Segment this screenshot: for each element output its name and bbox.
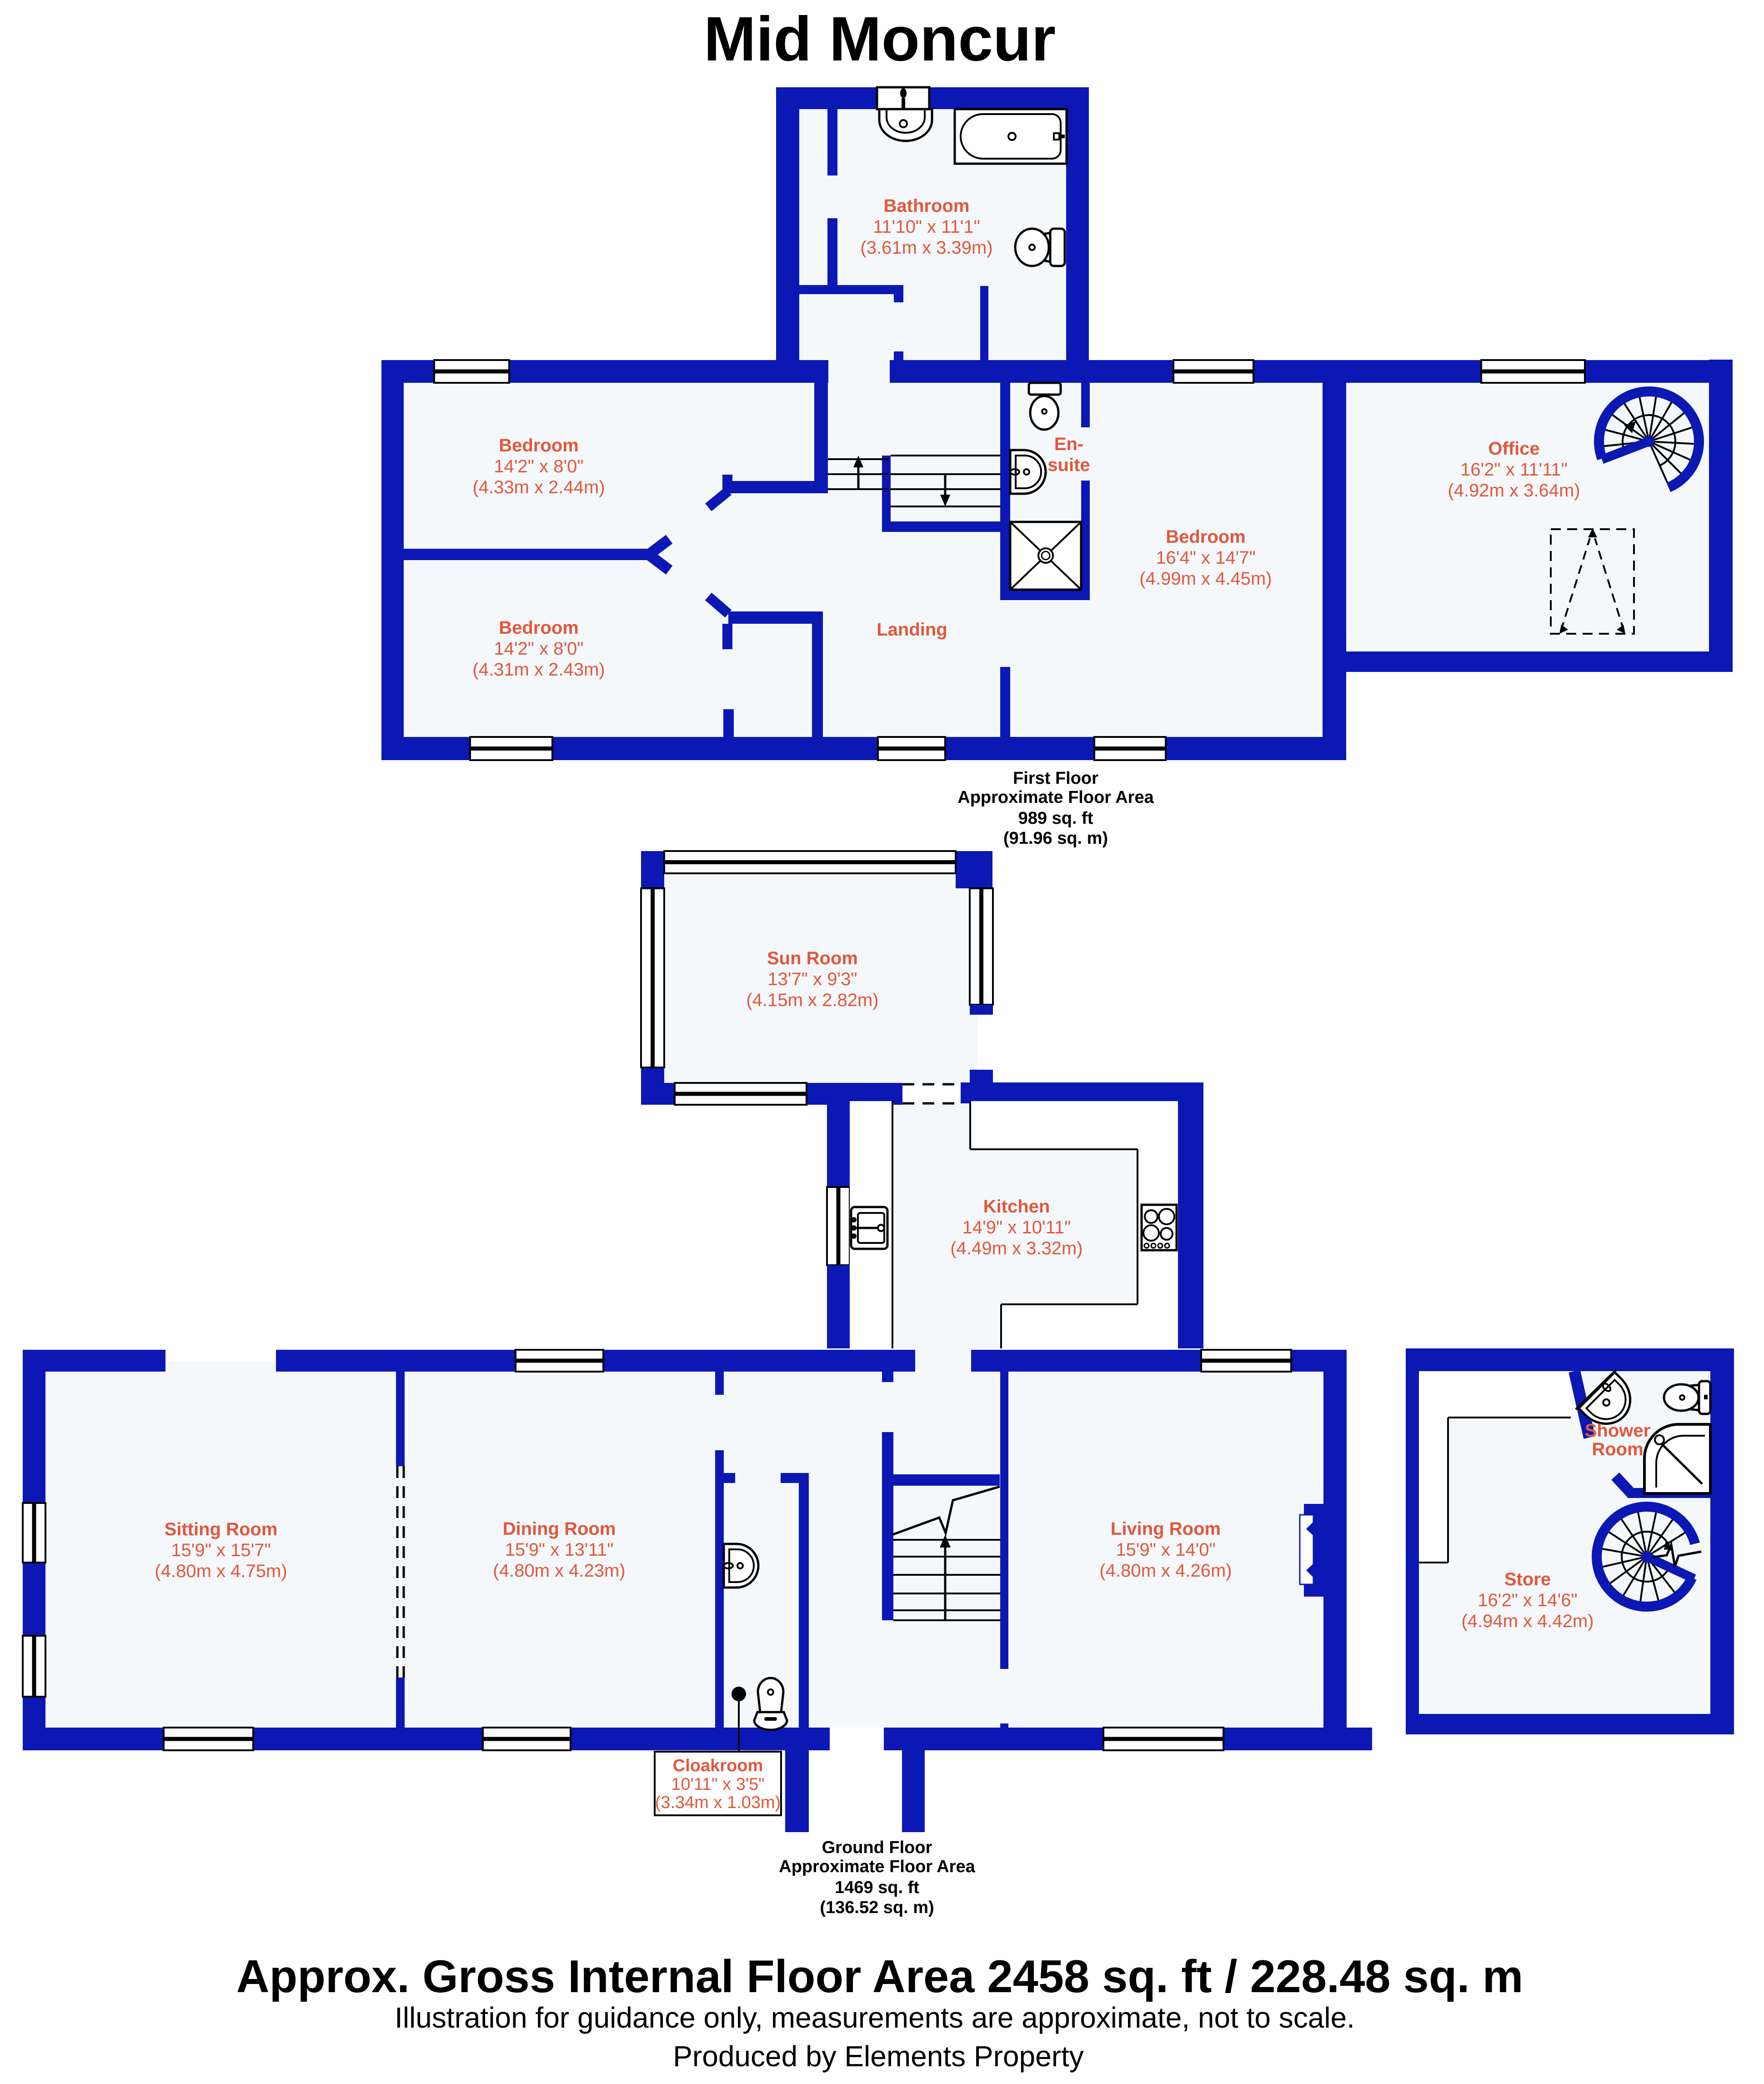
svg-text:First Floor: First Floor bbox=[1013, 769, 1098, 788]
svg-text:Approximate Floor Area: Approximate Floor Area bbox=[957, 788, 1154, 807]
svg-text:suite: suite bbox=[1047, 455, 1090, 475]
svg-text:14'2" x 8'0": 14'2" x 8'0" bbox=[494, 456, 583, 476]
svg-text:1469 sq. ft: 1469 sq. ft bbox=[835, 1878, 919, 1897]
svg-text:15'9" x 13'11": 15'9" x 13'11" bbox=[505, 1540, 614, 1560]
svg-text:(4.80m x 4.23m): (4.80m x 4.23m) bbox=[493, 1561, 625, 1581]
svg-text:(4.99m x 4.45m): (4.99m x 4.45m) bbox=[1139, 569, 1272, 589]
svg-text:11'10" x 11'1": 11'10" x 11'1" bbox=[873, 217, 980, 237]
svg-text:16'2" x 11'11": 16'2" x 11'11" bbox=[1460, 460, 1568, 480]
svg-text:14'9" x 10'11": 14'9" x 10'11" bbox=[962, 1217, 1071, 1237]
svg-text:Sitting Room: Sitting Room bbox=[165, 1519, 278, 1539]
svg-text:(4.80m x 4.75m): (4.80m x 4.75m) bbox=[155, 1561, 287, 1581]
svg-text:Ground Floor: Ground Floor bbox=[822, 1838, 932, 1857]
svg-text:15'9" x 15'7": 15'9" x 15'7" bbox=[171, 1540, 271, 1560]
svg-text:(3.61m x 3.39m): (3.61m x 3.39m) bbox=[860, 238, 992, 258]
svg-text:(4.80m x 4.26m): (4.80m x 4.26m) bbox=[1099, 1561, 1232, 1581]
svg-text:(4.15m x 2.82m): (4.15m x 2.82m) bbox=[746, 990, 878, 1010]
svg-text:10'11" x 3'5": 10'11" x 3'5" bbox=[671, 1775, 765, 1794]
svg-text:(136.52 sq. m): (136.52 sq. m) bbox=[820, 1898, 934, 1917]
svg-text:Room: Room bbox=[1592, 1439, 1643, 1459]
svg-text:(4.94m x 4.42m): (4.94m x 4.42m) bbox=[1461, 1611, 1594, 1631]
svg-text:Cloakroom: Cloakroom bbox=[673, 1756, 763, 1775]
svg-text:Shower: Shower bbox=[1585, 1421, 1650, 1441]
svg-text:(91.96 sq. m): (91.96 sq. m) bbox=[1003, 829, 1108, 848]
svg-text:Living Room: Living Room bbox=[1111, 1519, 1221, 1539]
svg-text:(3.34m x 1.03m): (3.34m x 1.03m) bbox=[655, 1793, 781, 1812]
svg-text:Produced by Elements Property: Produced by Elements Property bbox=[673, 2040, 1084, 2073]
svg-text:(4.92m x 3.64m): (4.92m x 3.64m) bbox=[1448, 481, 1580, 501]
svg-text:16'4" x 14'7": 16'4" x 14'7" bbox=[1156, 548, 1255, 568]
svg-text:Bedroom: Bedroom bbox=[499, 436, 579, 456]
svg-text:16'2" x 14'6": 16'2" x 14'6" bbox=[1478, 1590, 1577, 1610]
svg-text:(4.31m x 2.43m): (4.31m x 2.43m) bbox=[472, 660, 605, 680]
svg-text:(4.33m x 2.44m): (4.33m x 2.44m) bbox=[472, 477, 605, 497]
svg-text:Approximate Floor Area: Approximate Floor Area bbox=[779, 1857, 975, 1876]
svg-text:Illustration for guidance only: Illustration for guidance only, measurem… bbox=[395, 2001, 1355, 2034]
svg-text:En-: En- bbox=[1054, 434, 1083, 454]
svg-text:14'2" x 8'0": 14'2" x 8'0" bbox=[494, 639, 583, 659]
svg-text:15'9" x 14'0": 15'9" x 14'0" bbox=[1116, 1540, 1215, 1560]
svg-text:989 sq. ft: 989 sq. ft bbox=[1018, 809, 1093, 828]
svg-text:Sun Room: Sun Room bbox=[767, 948, 858, 968]
svg-text:Bedroom: Bedroom bbox=[1166, 527, 1246, 547]
svg-text:Bedroom: Bedroom bbox=[499, 618, 579, 638]
svg-text:Mid Moncur: Mid Moncur bbox=[704, 4, 1056, 74]
svg-text:Approx. Gross Internal Floor A: Approx. Gross Internal Floor Area 2458 s… bbox=[236, 1951, 1523, 2002]
svg-text:(4.49m x 3.32m): (4.49m x 3.32m) bbox=[950, 1238, 1082, 1258]
svg-text:Office: Office bbox=[1488, 439, 1539, 459]
svg-text:Store: Store bbox=[1504, 1569, 1551, 1589]
svg-text:13'7" x 9'3": 13'7" x 9'3" bbox=[767, 969, 857, 989]
svg-text:Landing: Landing bbox=[877, 620, 947, 640]
svg-text:Dining Room: Dining Room bbox=[503, 1519, 616, 1539]
svg-text:Kitchen: Kitchen bbox=[983, 1197, 1050, 1217]
svg-text:Bathroom: Bathroom bbox=[884, 196, 970, 216]
